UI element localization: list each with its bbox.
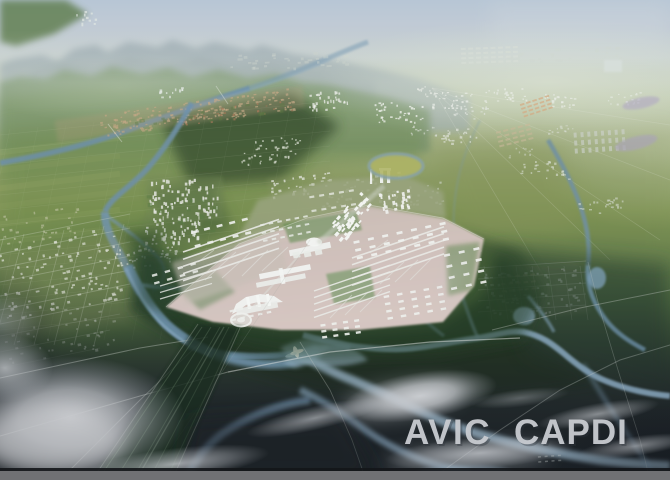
svg-text:CAPDI: CAPDI [514, 413, 628, 452]
svg-text:AVIC: AVIC [404, 413, 491, 452]
